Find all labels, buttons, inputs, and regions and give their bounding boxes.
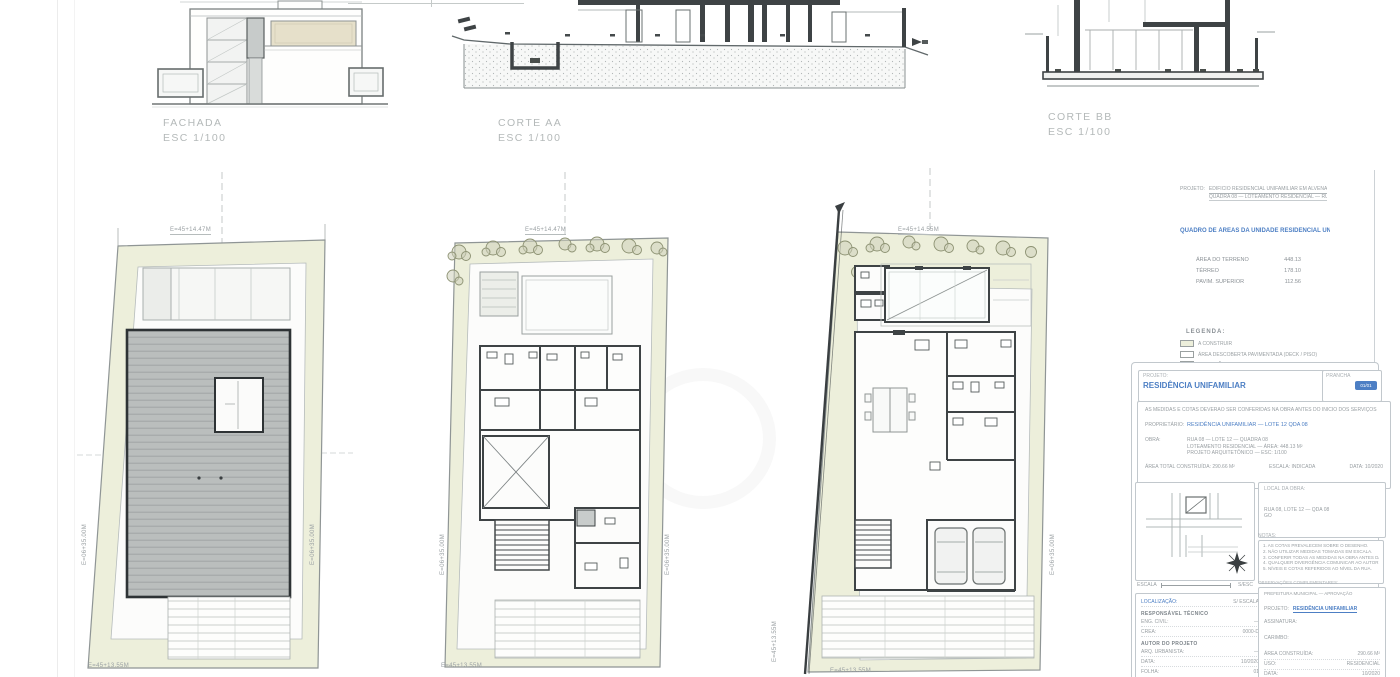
scale-bar-right-label: S/ESC	[1238, 582, 1253, 589]
pool	[885, 266, 989, 322]
upper-plan-dim-top: E=45+14.47M	[525, 227, 566, 235]
approval-proj-value: RESIDÊNCIA UNIFAMILIAR	[1293, 606, 1357, 613]
site-label: OBRA:	[1145, 437, 1179, 457]
info-panel: PROJETO: EDIFICIO RESIDENCIAL UNIFAMILIA…	[1180, 186, 1330, 379]
interior-partitions	[1085, 30, 1193, 70]
field-row: DATA:10/2020	[1141, 657, 1259, 667]
location-map-sketch	[1142, 489, 1246, 561]
pool-void	[522, 276, 612, 334]
facade-caption: FACHADA ESC 1/100	[163, 116, 226, 146]
sheet-edge-line	[57, 0, 58, 677]
ground-plan-dim-top: E=45+14.55M	[898, 227, 939, 235]
stair	[495, 520, 549, 570]
double-height-void	[483, 436, 549, 508]
field-row: DATA:10/2020	[1264, 670, 1380, 677]
dining-table	[865, 388, 915, 432]
notes-box: 1. AS COTAS PREVALECEM SOBRE O DESENHO. …	[1258, 540, 1384, 584]
ground-floor-plan-drawing	[765, 160, 1065, 677]
metal-roof	[127, 330, 290, 597]
area-row-value: 112.56	[1285, 279, 1301, 286]
roof-plan-dim-bottom: E=45+13.55M	[88, 663, 129, 669]
note-line: 1. AS COTAS PREVALECEM SOBRE O DESENHO.	[1263, 543, 1379, 549]
titleblock-sheet-box: PRANCHA 01/01	[1322, 370, 1382, 402]
legend-item: ÁREA DESCOBERTA PAVIMENTADA (DECK / PISO…	[1180, 351, 1320, 358]
ground-plan-dim-right: E=06+35.00M	[1050, 534, 1056, 575]
signature-label: ASSINATURA:	[1264, 619, 1380, 626]
project-line2: QUADRA 08 — LOTEAMENTO RESIDENCIAL — RUA…	[1209, 194, 1327, 202]
window-strip	[271, 21, 356, 46]
field-row: LOCALIZAÇÃO:S/ ESCALA	[1141, 597, 1259, 607]
field-row: CREA:0000-D	[1141, 627, 1259, 637]
area-row-label: TÉRREO	[1196, 268, 1219, 275]
facade-title: FACHADA	[163, 116, 226, 131]
section-bb-caption: CORTE BB ESC 1/100	[1048, 110, 1113, 140]
section-aa-caption: CORTE AA ESC 1/100	[498, 116, 562, 146]
observations-label: OBSERVAÇÕES COMPLEMENTARES:	[1258, 580, 1338, 587]
header-label: PROJETO:	[1143, 373, 1323, 380]
field-row: ENG. CIVIL:—	[1141, 617, 1259, 627]
facade-scale: ESC 1/100	[163, 131, 226, 146]
owner-label: PROPRIETÁRIO:	[1145, 422, 1179, 429]
area-row-label: PAVIM. SUPERIOR	[1196, 279, 1244, 286]
site-line3: PROJETO ARQUITETÔNICO — ESC: 1/100	[1187, 450, 1303, 457]
section-doors	[626, 10, 846, 42]
garage	[927, 520, 1015, 590]
roof-plan-dim-right: E=06+35.00M	[310, 524, 316, 565]
field-row: ARQ. URBANISTA:—	[1141, 647, 1259, 657]
section-cut-arrow	[912, 38, 922, 46]
car	[935, 528, 967, 584]
field-row: ÁREA CONSTRUÍDA:290.66 M²	[1264, 650, 1380, 660]
sheet-label: PRANCHA	[1326, 373, 1378, 380]
north-arrow-icon	[1226, 552, 1248, 574]
local-label: LOCAL DA OBRA:	[1264, 486, 1380, 493]
main-footer-mid: ESCALA: INDICADA	[1269, 464, 1315, 471]
location-map-box	[1135, 482, 1255, 581]
approval-proj-label: PROJETO:	[1264, 606, 1289, 613]
legend-swatch	[1180, 351, 1194, 358]
driveway	[495, 600, 640, 658]
main-footer-right: DATA: 10/2020	[1350, 464, 1383, 471]
areas-table: ÁREA DO TERRENO448.13 TÉRREO178.10 PAVIM…	[1196, 257, 1301, 286]
upper-plan-dim-bottom: E=45+13.55M	[441, 663, 482, 669]
roof-plan-drawing	[75, 168, 355, 677]
note-line: 5. NÍVEIS E COTAS REFERIDOS AO NÍVEL DA …	[1263, 566, 1379, 572]
section-bb-title: CORTE BB	[1048, 110, 1113, 125]
section-bb-scale: ESC 1/100	[1048, 125, 1113, 140]
area-row-label: ÁREA DO TERRENO	[1196, 257, 1249, 264]
titleblock-left-fields: LOCALIZAÇÃO:S/ ESCALA RESPONSÁVEL TÉCNIC…	[1135, 593, 1265, 677]
architectural-sheet: FACHADA ESC 1/100	[0, 0, 1400, 677]
stair	[855, 520, 891, 568]
spa-rooms	[855, 266, 889, 320]
legend-item: A CONSTRUIR	[1180, 340, 1320, 347]
notes-label: NOTAS:	[1258, 533, 1276, 540]
car	[973, 528, 1005, 584]
service-rooms	[575, 508, 640, 588]
left-level-flags	[458, 17, 477, 32]
sheet-badge: 01/01	[1355, 381, 1377, 390]
approval-box: PREFEITURA MUNICIPAL — APROVAÇÃO PROJETO…	[1258, 587, 1386, 677]
driveway	[168, 597, 290, 659]
area-row-value: 448.13	[1284, 257, 1301, 264]
skylight	[215, 378, 263, 432]
owner-value: RESIDÊNCIA UNIFAMILIAR — LOTE 12 QDA 08	[1187, 422, 1308, 429]
graphic-scale-bar: ESCALA S/ESC	[1137, 582, 1253, 590]
areas-table-title: QUADRO DE ÁREAS DA UNIDADE RESIDENCIAL U…	[1180, 227, 1330, 235]
titleblock-local-box: LOCAL DA OBRA: RUA 08, LOTE 12 — QDA 08 …	[1258, 482, 1386, 538]
upper-floor-plan-drawing	[435, 168, 695, 677]
project-name: RESIDÊNCIA UNIFAMILIAR	[1143, 381, 1323, 390]
legend-swatch	[1180, 340, 1194, 347]
main-footer-left: ÁREA TOTAL CONSTRUÍDA: 290.66 M²	[1145, 464, 1235, 471]
main-note: AS MEDIDAS E COTAS DEVERÃO SER CONFERIDA…	[1145, 407, 1383, 414]
glazing-panel	[207, 18, 247, 104]
level-markers	[505, 32, 870, 37]
approval-header: PREFEITURA MUNICIPAL — APROVAÇÃO	[1264, 591, 1380, 598]
facade-elevation-drawing	[150, 0, 390, 118]
local-line2: GO	[1264, 513, 1380, 520]
field-row: USO:RESIDENCIAL	[1264, 660, 1380, 670]
section-aa-title: CORTE AA	[498, 116, 562, 131]
roof-plan-dim-top: E=45+14.47M	[170, 227, 211, 235]
roof-terrace	[143, 268, 290, 320]
titleblock-main: AS MEDIDAS E COTAS DEVERÃO SER CONFERIDA…	[1137, 401, 1391, 489]
ground-plan-dim-bottom: E=45+13.55M	[830, 668, 871, 674]
legend-title: LEGENDA:	[1186, 328, 1330, 336]
stamp-label: CARIMBO:	[1264, 635, 1380, 642]
upper-plan-dim-right: E=06+35.00M	[665, 534, 671, 575]
upper-plan-dim-left: E=06+35.00M	[440, 534, 446, 575]
ground-plan-dim-left: E=45+13.55M	[772, 621, 778, 662]
roof-plan-dim-left: E=06+35.00M	[82, 524, 88, 565]
field-row: FOLHA:01	[1141, 667, 1259, 676]
note-line: 2. NÃO UTILIZAR MEDIDAS TOMADAS EM ESCAL…	[1263, 549, 1379, 555]
project-label: PROJETO:	[1180, 186, 1205, 201]
project-line1: EDIFICIO RESIDENCIAL UNIFAMILIAR EM ALVE…	[1209, 186, 1327, 194]
area-row-value: 178.10	[1284, 268, 1301, 275]
dimension-tick	[431, 0, 432, 7]
scale-bar-left-label: ESCALA	[1137, 582, 1157, 589]
planter	[480, 272, 518, 316]
titleblock-header: PROJETO: RESIDÊNCIA UNIFAMILIAR	[1138, 370, 1328, 402]
section-aa-scale: ESC 1/100	[498, 131, 562, 146]
driveway	[822, 596, 1034, 658]
